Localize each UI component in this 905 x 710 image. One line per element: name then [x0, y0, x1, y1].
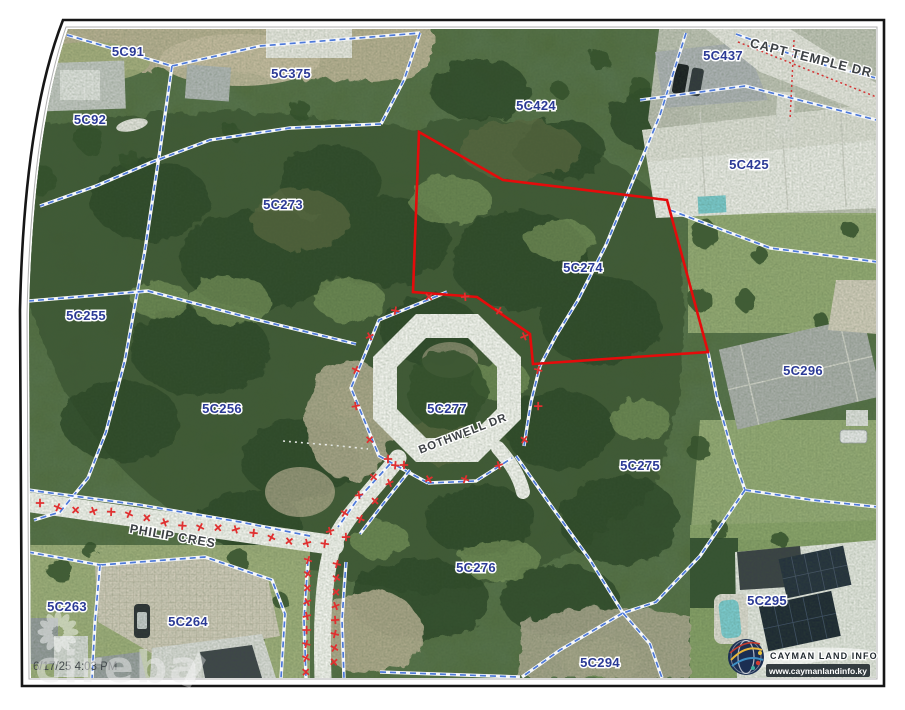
parcel-label-5c275: 5C275 [620, 458, 660, 473]
parcel-label-5c437: 5C437 [703, 48, 743, 63]
parcel-label-5c255: 5C255 [66, 308, 106, 323]
parcel-label-5c274: 5C274 [563, 260, 603, 275]
parcel-label-5c264: 5C264 [168, 614, 208, 629]
watermark-text: cireba [35, 642, 201, 693]
logo-title: CAYMAN LAND INFO [770, 651, 878, 661]
parcel-label-5c92: 5C92 [74, 112, 106, 127]
map-page: 5C91 5C92 5C375 5C424 5C437 5C425 5C273 … [0, 0, 905, 710]
aerial-imagery: 5C91 5C92 5C375 5C424 5C437 5C425 5C273 … [19, 22, 885, 682]
parcel-label-5c424: 5C424 [516, 98, 556, 113]
parcel-label-5c277: 5C277 [427, 401, 467, 416]
parcel-label-5c375: 5C375 [271, 66, 311, 81]
parcel-label-5c294: 5C294 [580, 655, 620, 670]
parcel-label-5c273: 5C273 [263, 197, 303, 212]
parcel-label-5c263: 5C263 [47, 599, 87, 614]
parcel-label-5c296: 5C296 [783, 363, 823, 378]
parcel-label-5c425: 5C425 [729, 157, 769, 172]
map-canvas: 5C91 5C92 5C375 5C424 5C437 5C425 5C273 … [0, 0, 905, 710]
parcel-label-5c295: 5C295 [747, 593, 787, 608]
globe-icon [728, 639, 764, 675]
parcel-label-5c256: 5C256 [202, 401, 242, 416]
parcel-label-5c276: 5C276 [456, 560, 496, 575]
parcel-label-5c91: 5C91 [112, 44, 144, 59]
logo-url: www.caymanlandinfo.ky [768, 666, 867, 676]
